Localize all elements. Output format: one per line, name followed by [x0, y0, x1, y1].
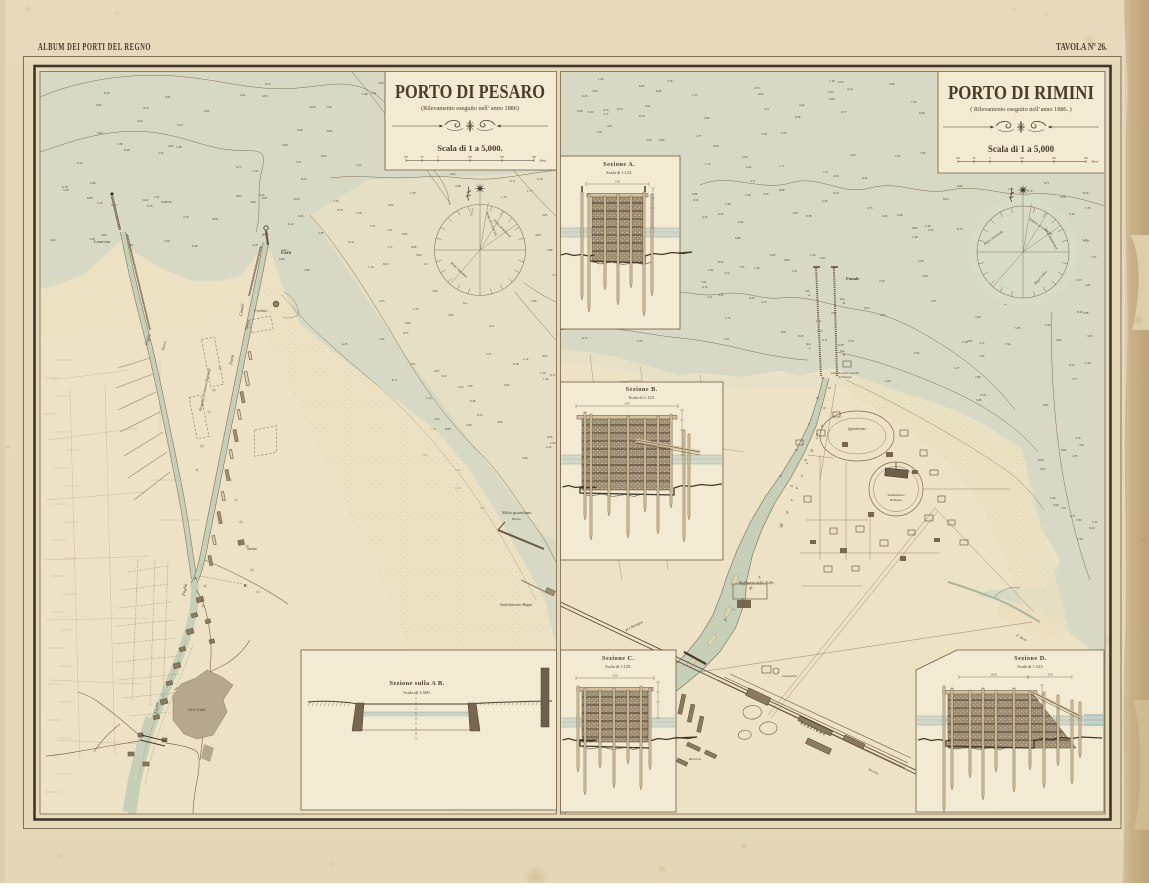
svg-text:2.81: 2.81: [165, 95, 171, 99]
svg-text:2.65: 2.65: [838, 80, 844, 84]
svg-text:Sezione A.: Sezione A.: [603, 161, 635, 168]
svg-text:3.17: 3.17: [954, 366, 960, 370]
svg-text:8.80: 8.80: [87, 196, 93, 200]
svg-text:8.18: 8.18: [62, 185, 68, 189]
svg-text:2.30: 2.30: [879, 279, 885, 283]
svg-text:6.29: 6.29: [838, 343, 844, 347]
svg-text:5.04: 5.04: [450, 172, 456, 176]
svg-text:5.94: 5.94: [522, 456, 528, 460]
svg-text:2.04: 2.04: [240, 93, 246, 97]
svg-text:6.29: 6.29: [718, 212, 724, 216]
svg-text:1.77: 1.77: [779, 164, 785, 168]
svg-text:6.86: 6.86: [735, 236, 741, 240]
svg-text:5.16: 5.16: [1069, 212, 1075, 216]
svg-text:4.19: 4.19: [702, 285, 708, 289]
svg-text:7.90: 7.90: [920, 151, 926, 155]
svg-text:0.64: 0.64: [758, 92, 764, 96]
svg-text:6.43: 6.43: [582, 94, 588, 98]
svg-text:2.41: 2.41: [371, 91, 377, 95]
svg-text:2.75: 2.75: [867, 206, 873, 210]
svg-text:Scala di 1:125.: Scala di 1:125.: [1017, 664, 1043, 669]
svg-text:1.74: 1.74: [725, 316, 731, 320]
svg-text:7.19: 7.19: [667, 79, 673, 83]
svg-text:6.20: 6.20: [749, 296, 755, 300]
svg-text:0.53: 0.53: [147, 204, 153, 208]
svg-text:5.79: 5.79: [781, 131, 787, 135]
svg-text:Birata: Birata: [512, 517, 521, 521]
svg-text:6.07: 6.07: [793, 211, 799, 215]
svg-text:A: A: [194, 576, 197, 581]
svg-text:8.36: 8.36: [1077, 310, 1083, 314]
svg-text:7.50: 7.50: [848, 339, 854, 343]
svg-text:8.34: 8.34: [914, 351, 920, 355]
svg-text:Scala di 1 a 5,000: Scala di 1 a 5,000: [988, 144, 1055, 154]
svg-text:7.02: 7.02: [979, 354, 985, 358]
svg-text:1.44: 1.44: [543, 377, 549, 381]
svg-text:2.32: 2.32: [379, 337, 385, 341]
svg-text:8.81: 8.81: [781, 330, 787, 334]
svg-text:5.06: 5.06: [918, 259, 924, 263]
svg-text:Balneare: Balneare: [890, 498, 903, 502]
svg-text:(Rilevamento eseguito nell’ an: (Rilevamento eseguito nell’ anno 1886): [421, 105, 519, 112]
svg-text:4.99: 4.99: [250, 200, 256, 204]
svg-text:4.78: 4.78: [1075, 436, 1081, 440]
svg-text:7.30: 7.30: [745, 193, 751, 197]
svg-text:4.53: 4.53: [379, 299, 385, 303]
svg-text:6.49: 6.49: [897, 213, 903, 217]
svg-text:7.50: 7.50: [911, 100, 917, 104]
svg-text:8.50: 8.50: [1083, 191, 1089, 195]
svg-text:2.33: 2.33: [763, 192, 769, 196]
svg-text:7.81: 7.81: [701, 280, 707, 284]
svg-text:2.96: 2.96: [889, 82, 895, 86]
svg-text:8.72: 8.72: [403, 331, 409, 335]
svg-text:7.30: 7.30: [1077, 537, 1083, 541]
svg-text:8.18: 8.18: [513, 362, 519, 366]
svg-text:4.95: 4.95: [262, 94, 268, 98]
svg-text:3.74: 3.74: [724, 271, 730, 275]
svg-text:1.82: 1.82: [708, 268, 714, 272]
svg-text:Ippodromo: Ippodromo: [847, 426, 866, 431]
svg-text:6.48: 6.48: [90, 181, 96, 185]
svg-text:B: B: [843, 301, 845, 305]
svg-text:3.02: 3.02: [646, 138, 652, 142]
svg-text:7.30: 7.30: [333, 199, 339, 203]
svg-text:0.69: 0.69: [1060, 195, 1066, 199]
svg-text:ALBUM DEI PORTI DEL REGNO: ALBUM DEI PORTI DEL REGNO: [38, 42, 151, 53]
svg-text:2.95: 2.95: [880, 313, 886, 317]
svg-text:2.79: 2.79: [537, 177, 543, 181]
svg-text:3.83: 3.83: [448, 313, 454, 317]
svg-text:4.51: 4.51: [489, 324, 495, 328]
svg-text:7.25: 7.25: [1092, 520, 1098, 524]
svg-text:Lanterna: Lanterna: [93, 239, 111, 244]
svg-text:6.68: 6.68: [279, 257, 285, 261]
svg-text:Molo guardiano: Molo guardiano: [502, 510, 532, 515]
svg-text:6.86: 6.86: [692, 192, 698, 196]
svg-text:0.42: 0.42: [746, 165, 752, 169]
svg-text:4.12: 4.12: [546, 445, 552, 449]
svg-text:5.95: 5.95: [1015, 326, 1021, 330]
svg-text:6.66: 6.66: [919, 111, 925, 115]
svg-text:8.38: 8.38: [795, 115, 801, 119]
svg-text:9.40: 9.40: [470, 399, 476, 403]
svg-text:Stabilimento: Stabilimento: [887, 493, 905, 497]
svg-text:3.68: 3.68: [101, 233, 107, 237]
svg-text:1.77: 1.77: [696, 134, 702, 138]
svg-text:5.21: 5.21: [792, 269, 798, 273]
svg-text:8.03: 8.03: [943, 197, 949, 201]
svg-text:3.13: 3.13: [77, 161, 83, 165]
svg-text:3.09: 3.09: [378, 81, 384, 85]
svg-text:3.51: 3.51: [296, 160, 302, 164]
svg-text:4.52: 4.52: [693, 198, 699, 202]
svg-text:0.91: 0.91: [645, 104, 651, 108]
svg-text:Scala di 1:125.: Scala di 1:125.: [629, 395, 655, 400]
svg-text:6.05: 6.05: [96, 103, 102, 107]
svg-text:2.74: 2.74: [761, 300, 767, 304]
svg-text:6.70: 6.70: [639, 114, 645, 118]
svg-text:1.85: 1.85: [1072, 454, 1078, 458]
svg-text:8.54: 8.54: [259, 193, 265, 197]
svg-text:8.93: 8.93: [402, 232, 408, 236]
svg-text:5.38: 5.38: [725, 202, 731, 206]
svg-text:5.02: 5.02: [850, 153, 856, 157]
svg-text:4.08: 4.08: [411, 245, 417, 249]
svg-text:0.43: 0.43: [882, 214, 888, 218]
svg-text:3.16: 3.16: [97, 201, 103, 205]
svg-text:2.14: 2.14: [962, 340, 968, 344]
svg-text:B: B: [244, 583, 247, 588]
svg-text:2.70: 2.70: [1027, 189, 1033, 193]
svg-text:2.87: 2.87: [434, 369, 440, 373]
svg-text:9.39: 9.39: [192, 244, 198, 248]
svg-text:Stabilimento Bagni: Stabilimento Bagni: [500, 602, 533, 607]
svg-text:5.60: 5.60: [466, 423, 472, 427]
svg-text:5.36: 5.36: [356, 211, 362, 215]
svg-text:2.11: 2.11: [822, 338, 828, 342]
svg-text:8.35: 8.35: [265, 82, 271, 86]
svg-text:5.25: 5.25: [356, 163, 362, 167]
svg-text:1.49: 1.49: [912, 235, 918, 239]
svg-text:5.09: 5.09: [975, 315, 981, 319]
svg-text:2.68: 2.68: [577, 109, 583, 113]
svg-text:5.37: 5.37: [370, 224, 376, 228]
svg-text:8.23: 8.23: [301, 177, 307, 181]
svg-text:2.99: 2.99: [592, 89, 598, 93]
svg-text:Sezione D.: Sezione D.: [1014, 655, 1047, 662]
svg-text:6.08: 6.08: [829, 97, 835, 101]
svg-text:5.89: 5.89: [547, 248, 553, 252]
svg-text:7.49: 7.49: [596, 130, 602, 134]
svg-text:4.50: 4.50: [613, 675, 618, 678]
svg-text:5.48: 5.48: [362, 92, 368, 96]
svg-text:2.93: 2.93: [820, 256, 826, 260]
svg-text:7.91: 7.91: [410, 362, 416, 366]
svg-text:2.76: 2.76: [183, 215, 189, 219]
svg-text:4.18: 4.18: [252, 243, 258, 247]
svg-text:7.82: 7.82: [1076, 518, 1082, 522]
svg-text:7.94: 7.94: [1005, 342, 1011, 346]
svg-text:7.16: 7.16: [368, 265, 374, 269]
svg-text:1.44: 1.44: [754, 266, 760, 270]
svg-text:2.54: 2.54: [895, 154, 901, 158]
svg-text:1.51: 1.51: [707, 295, 713, 299]
svg-text:1.69: 1.69: [598, 77, 604, 81]
svg-text:5.86: 5.86: [976, 398, 982, 402]
svg-text:9.25: 9.25: [477, 413, 483, 417]
svg-text:0.43: 0.43: [828, 90, 834, 94]
svg-text:6.69: 6.69: [957, 184, 963, 188]
svg-text:2.62: 2.62: [168, 144, 174, 148]
svg-text:5.62: 5.62: [50, 238, 56, 242]
svg-text:Sezione C.: Sezione C.: [602, 655, 635, 662]
svg-text:5.93: 5.93: [742, 155, 748, 159]
svg-text:7.50: 7.50: [761, 132, 767, 136]
svg-text:2.43: 2.43: [434, 417, 440, 421]
svg-text:Barriera: Barriera: [689, 757, 701, 761]
svg-text:4.00: 4.00: [535, 233, 541, 237]
svg-text:8.52: 8.52: [718, 260, 724, 264]
svg-text:Scala di 1 a 5,000.: Scala di 1 a 5,000.: [437, 143, 502, 153]
svg-text:8.04: 8.04: [310, 105, 316, 109]
svg-text:3.99: 3.99: [713, 144, 719, 148]
svg-text:0.45: 0.45: [298, 214, 304, 218]
svg-text:8.62: 8.62: [327, 129, 333, 133]
svg-text:8.73: 8.73: [957, 227, 963, 231]
svg-text:5.38: 5.38: [117, 142, 123, 146]
svg-text:0.66: 0.66: [161, 200, 167, 204]
svg-text:Sezione B.: Sezione B.: [626, 386, 658, 393]
svg-text:4.79: 4.79: [928, 228, 934, 232]
svg-text:4.92: 4.92: [1056, 338, 1062, 342]
svg-text:8.22: 8.22: [588, 110, 594, 114]
svg-text:1.79: 1.79: [413, 307, 419, 311]
svg-text:Sanìta: Sanìta: [247, 547, 257, 551]
svg-text:3.65: 3.65: [1087, 334, 1093, 338]
svg-text:8.83: 8.83: [236, 194, 242, 198]
svg-text:9.09: 9.09: [405, 321, 411, 325]
svg-text:6.14: 6.14: [288, 222, 294, 226]
svg-text:4.14: 4.14: [847, 87, 853, 91]
svg-text:7.84: 7.84: [975, 375, 981, 379]
svg-text:8.49: 8.49: [124, 148, 130, 152]
svg-text:8.71: 8.71: [1044, 181, 1050, 185]
svg-text:0.93: 0.93: [294, 197, 300, 201]
svg-text:7.21: 7.21: [387, 228, 393, 232]
svg-text:3.77: 3.77: [1072, 377, 1078, 381]
svg-text:7.89: 7.89: [432, 289, 438, 293]
svg-text:2.54: 2.54: [1008, 187, 1014, 191]
svg-text:4.01: 4.01: [607, 124, 613, 128]
svg-text:2.50: 2.50: [822, 199, 828, 203]
svg-text:0.82: 0.82: [912, 226, 918, 230]
svg-text:4.50: 4.50: [625, 403, 630, 406]
svg-text:2.68: 2.68: [1083, 311, 1089, 315]
svg-text:1.08: 1.08: [531, 299, 537, 303]
svg-text:Metri: Metri: [1092, 160, 1099, 164]
svg-text:1.13: 1.13: [817, 329, 823, 333]
svg-text:6.08: 6.08: [166, 200, 172, 204]
svg-text:4.42: 4.42: [799, 103, 805, 107]
svg-text:4.28: 4.28: [885, 379, 891, 383]
svg-text:1.57: 1.57: [1070, 514, 1076, 518]
svg-text:6.52: 6.52: [1069, 363, 1075, 367]
svg-text:2.50: 2.50: [164, 239, 170, 243]
svg-text:5.57: 5.57: [486, 352, 492, 356]
svg-text:1.53: 1.53: [692, 93, 698, 97]
svg-text:4.50: 4.50: [1048, 674, 1053, 677]
svg-text:0.86: 0.86: [784, 258, 790, 262]
svg-text:6.32: 6.32: [1089, 526, 1095, 530]
svg-text:8.29: 8.29: [798, 334, 804, 338]
svg-text:PORTO DI PESARO: PORTO DI PESARO: [395, 81, 545, 103]
svg-text:3.23: 3.23: [458, 385, 464, 389]
svg-text:7.37: 7.37: [1084, 239, 1090, 243]
svg-text:Fanale: Fanale: [846, 276, 859, 281]
svg-text:3.45: 3.45: [718, 293, 724, 297]
svg-text:1.77: 1.77: [527, 189, 533, 193]
svg-text:7.47: 7.47: [1091, 255, 1097, 259]
svg-text:5.17: 5.17: [979, 341, 985, 345]
svg-text:4.94: 4.94: [497, 420, 503, 424]
svg-text:4.89: 4.89: [282, 143, 288, 147]
svg-text:5.54: 5.54: [158, 151, 164, 155]
svg-text:Orti Giuli: Orti Giuli: [188, 707, 206, 712]
svg-text:3.01: 3.01: [1079, 443, 1085, 447]
svg-text:7.67: 7.67: [1061, 506, 1067, 510]
svg-text:7.18: 7.18: [829, 79, 835, 83]
svg-text:1.64: 1.64: [1050, 496, 1056, 500]
svg-text:8.48: 8.48: [656, 89, 662, 93]
svg-text:2.48: 2.48: [1085, 361, 1091, 365]
svg-text:( Rilevamento eseguito nell’an: ( Rilevamento eseguito nell’anno 1886. ): [970, 106, 1071, 113]
svg-text:8.03: 8.03: [383, 262, 389, 266]
svg-text:4.45: 4.45: [137, 119, 143, 123]
svg-text:8.06: 8.06: [1061, 448, 1067, 452]
svg-text:2.53: 2.53: [754, 86, 760, 90]
svg-text:6.13: 6.13: [582, 336, 588, 340]
svg-text:0.93: 0.93: [770, 253, 776, 257]
svg-text:3.58: 3.58: [922, 274, 928, 278]
svg-text:0.62: 0.62: [388, 203, 394, 207]
svg-text:0.55: 0.55: [864, 306, 870, 310]
svg-text:4.71: 4.71: [764, 107, 770, 111]
svg-text:6.17: 6.17: [392, 378, 398, 382]
svg-text:Sezione sulla A B.: Sezione sulla A B.: [389, 680, 444, 687]
svg-text:1.48: 1.48: [176, 145, 182, 149]
svg-text:2.78: 2.78: [410, 191, 416, 195]
svg-text:3.11: 3.11: [750, 179, 756, 183]
svg-text:2.17: 2.17: [603, 112, 609, 116]
svg-text:8.92: 8.92: [204, 109, 210, 113]
svg-text:6.76: 6.76: [348, 240, 354, 244]
svg-text:1.33: 1.33: [501, 195, 507, 199]
svg-text:6.56: 6.56: [547, 435, 553, 439]
svg-text:6.11: 6.11: [510, 179, 516, 183]
svg-text:1.91: 1.91: [724, 337, 730, 341]
svg-text:9.06: 9.06: [212, 217, 218, 221]
svg-text:2.60: 2.60: [1053, 503, 1059, 507]
svg-text:1.30: 1.30: [540, 371, 546, 375]
svg-text:5.25: 5.25: [177, 123, 183, 127]
svg-text:Scala di 1:125.: Scala di 1:125.: [605, 664, 631, 669]
svg-text:6.73: 6.73: [236, 165, 242, 169]
svg-text:8.10: 8.10: [833, 191, 839, 195]
svg-text:3.40: 3.40: [297, 128, 303, 132]
svg-text:7.05: 7.05: [739, 265, 745, 269]
svg-text:5.39: 5.39: [1045, 323, 1051, 327]
svg-text:4.28: 4.28: [455, 184, 461, 188]
svg-text:Scala di 1:500.: Scala di 1:500.: [403, 690, 430, 695]
svg-text:2.53: 2.53: [1076, 278, 1082, 282]
svg-text:3.85: 3.85: [542, 213, 548, 217]
svg-text:7.80: 7.80: [304, 268, 310, 272]
svg-text:TAVOLA Nº 26.: TAVOLA Nº 26.: [1056, 42, 1107, 53]
svg-text:10.00: 10.00: [990, 674, 997, 677]
svg-text:7.11: 7.11: [823, 170, 829, 174]
svg-text:1.12: 1.12: [705, 162, 711, 166]
svg-text:8.68: 8.68: [779, 188, 785, 192]
svg-text:4.44: 4.44: [862, 176, 868, 180]
svg-text:2.30: 2.30: [833, 174, 839, 178]
svg-text:8.77: 8.77: [841, 110, 847, 114]
svg-text:Fortino: Fortino: [253, 308, 268, 313]
svg-text:7.17: 7.17: [387, 245, 393, 249]
svg-text:4.50: 4.50: [615, 181, 620, 184]
svg-text:1.81: 1.81: [154, 195, 160, 199]
svg-text:3.07: 3.07: [931, 299, 937, 303]
svg-text:5.75: 5.75: [637, 339, 643, 343]
svg-text:6.65: 6.65: [321, 154, 327, 158]
svg-text:1.33: 1.33: [1085, 206, 1091, 210]
svg-text:Metri: Metri: [540, 159, 547, 163]
svg-text:1.12: 1.12: [523, 357, 529, 361]
svg-text:3.19: 3.19: [980, 393, 986, 397]
svg-text:6.92: 6.92: [143, 198, 149, 202]
svg-text:4.23: 4.23: [342, 342, 348, 346]
svg-text:2.66: 2.66: [704, 116, 710, 120]
svg-text:0.90: 0.90: [659, 138, 665, 142]
svg-text:4.74: 4.74: [702, 215, 708, 219]
svg-text:C: C: [809, 346, 811, 350]
svg-text:8.88: 8.88: [1038, 458, 1044, 462]
svg-text:3.81: 3.81: [1085, 283, 1091, 287]
svg-text:1.52: 1.52: [426, 396, 432, 400]
svg-text:4.92: 4.92: [542, 354, 548, 358]
svg-text:0.43: 0.43: [738, 220, 744, 224]
svg-text:Gasometro: Gasometro: [782, 674, 797, 678]
svg-text:4.70: 4.70: [143, 106, 149, 110]
svg-text:8.80: 8.80: [445, 427, 451, 431]
svg-text:Scala di 1:125.: Scala di 1:125.: [606, 170, 632, 175]
svg-text:7.92: 7.92: [326, 105, 332, 109]
svg-text:8.58: 8.58: [806, 214, 812, 218]
svg-text:5.00: 5.00: [416, 253, 422, 257]
svg-text:6.25: 6.25: [617, 107, 623, 111]
svg-text:8.15: 8.15: [550, 373, 556, 377]
svg-text:PORTO DI RIMINI: PORTO DI RIMINI: [948, 82, 1094, 104]
svg-text:Faro: Faro: [281, 251, 292, 256]
svg-text:8.65: 8.65: [639, 84, 645, 88]
svg-text:0.79: 0.79: [337, 208, 343, 212]
svg-text:5.64: 5.64: [504, 383, 510, 387]
svg-text:5.38: 5.38: [318, 231, 324, 235]
svg-text:6.50: 6.50: [104, 91, 110, 95]
svg-text:7.09: 7.09: [467, 384, 473, 388]
svg-text:3.32: 3.32: [441, 374, 447, 378]
svg-text:5.83: 5.83: [97, 131, 103, 135]
